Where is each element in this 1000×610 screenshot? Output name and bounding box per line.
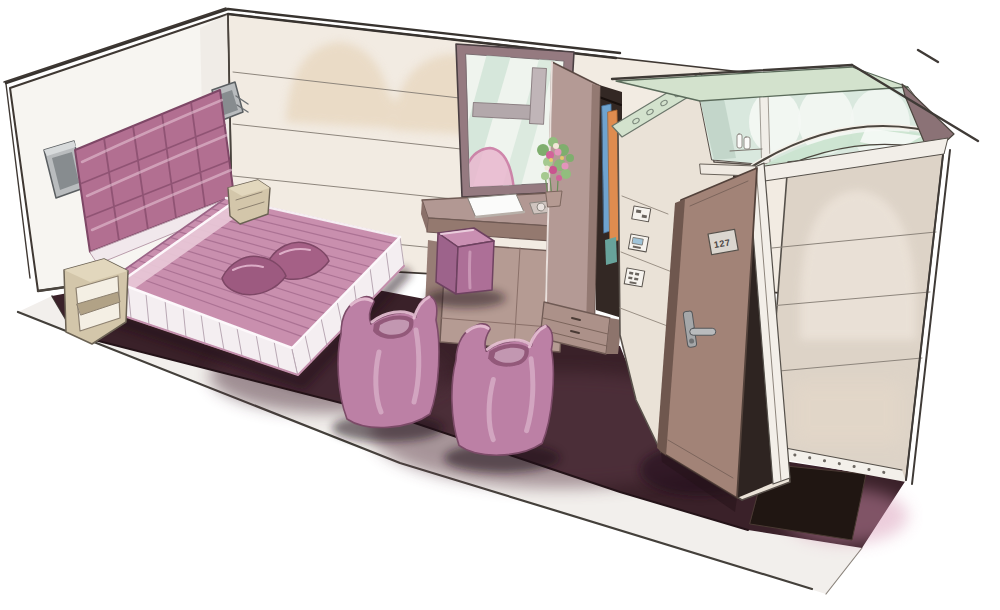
desk-book [468,194,524,217]
light-switch-panel-1 [632,206,651,222]
flower-vase [546,191,562,207]
tub-chair-2 [450,322,555,457]
door-number-plate: 127 [708,229,738,254]
room-sketch: 127 [0,0,1000,610]
closet [540,62,622,354]
illustration-hotel-room: 127 [0,0,1000,610]
light-switch-panel-3 [624,268,645,287]
interior-mullion [760,92,770,164]
clothes-teal [605,237,617,265]
tub-chair-1 [338,296,439,428]
light-switch-panel-2 [628,234,648,252]
ottoman-front [456,241,494,294]
